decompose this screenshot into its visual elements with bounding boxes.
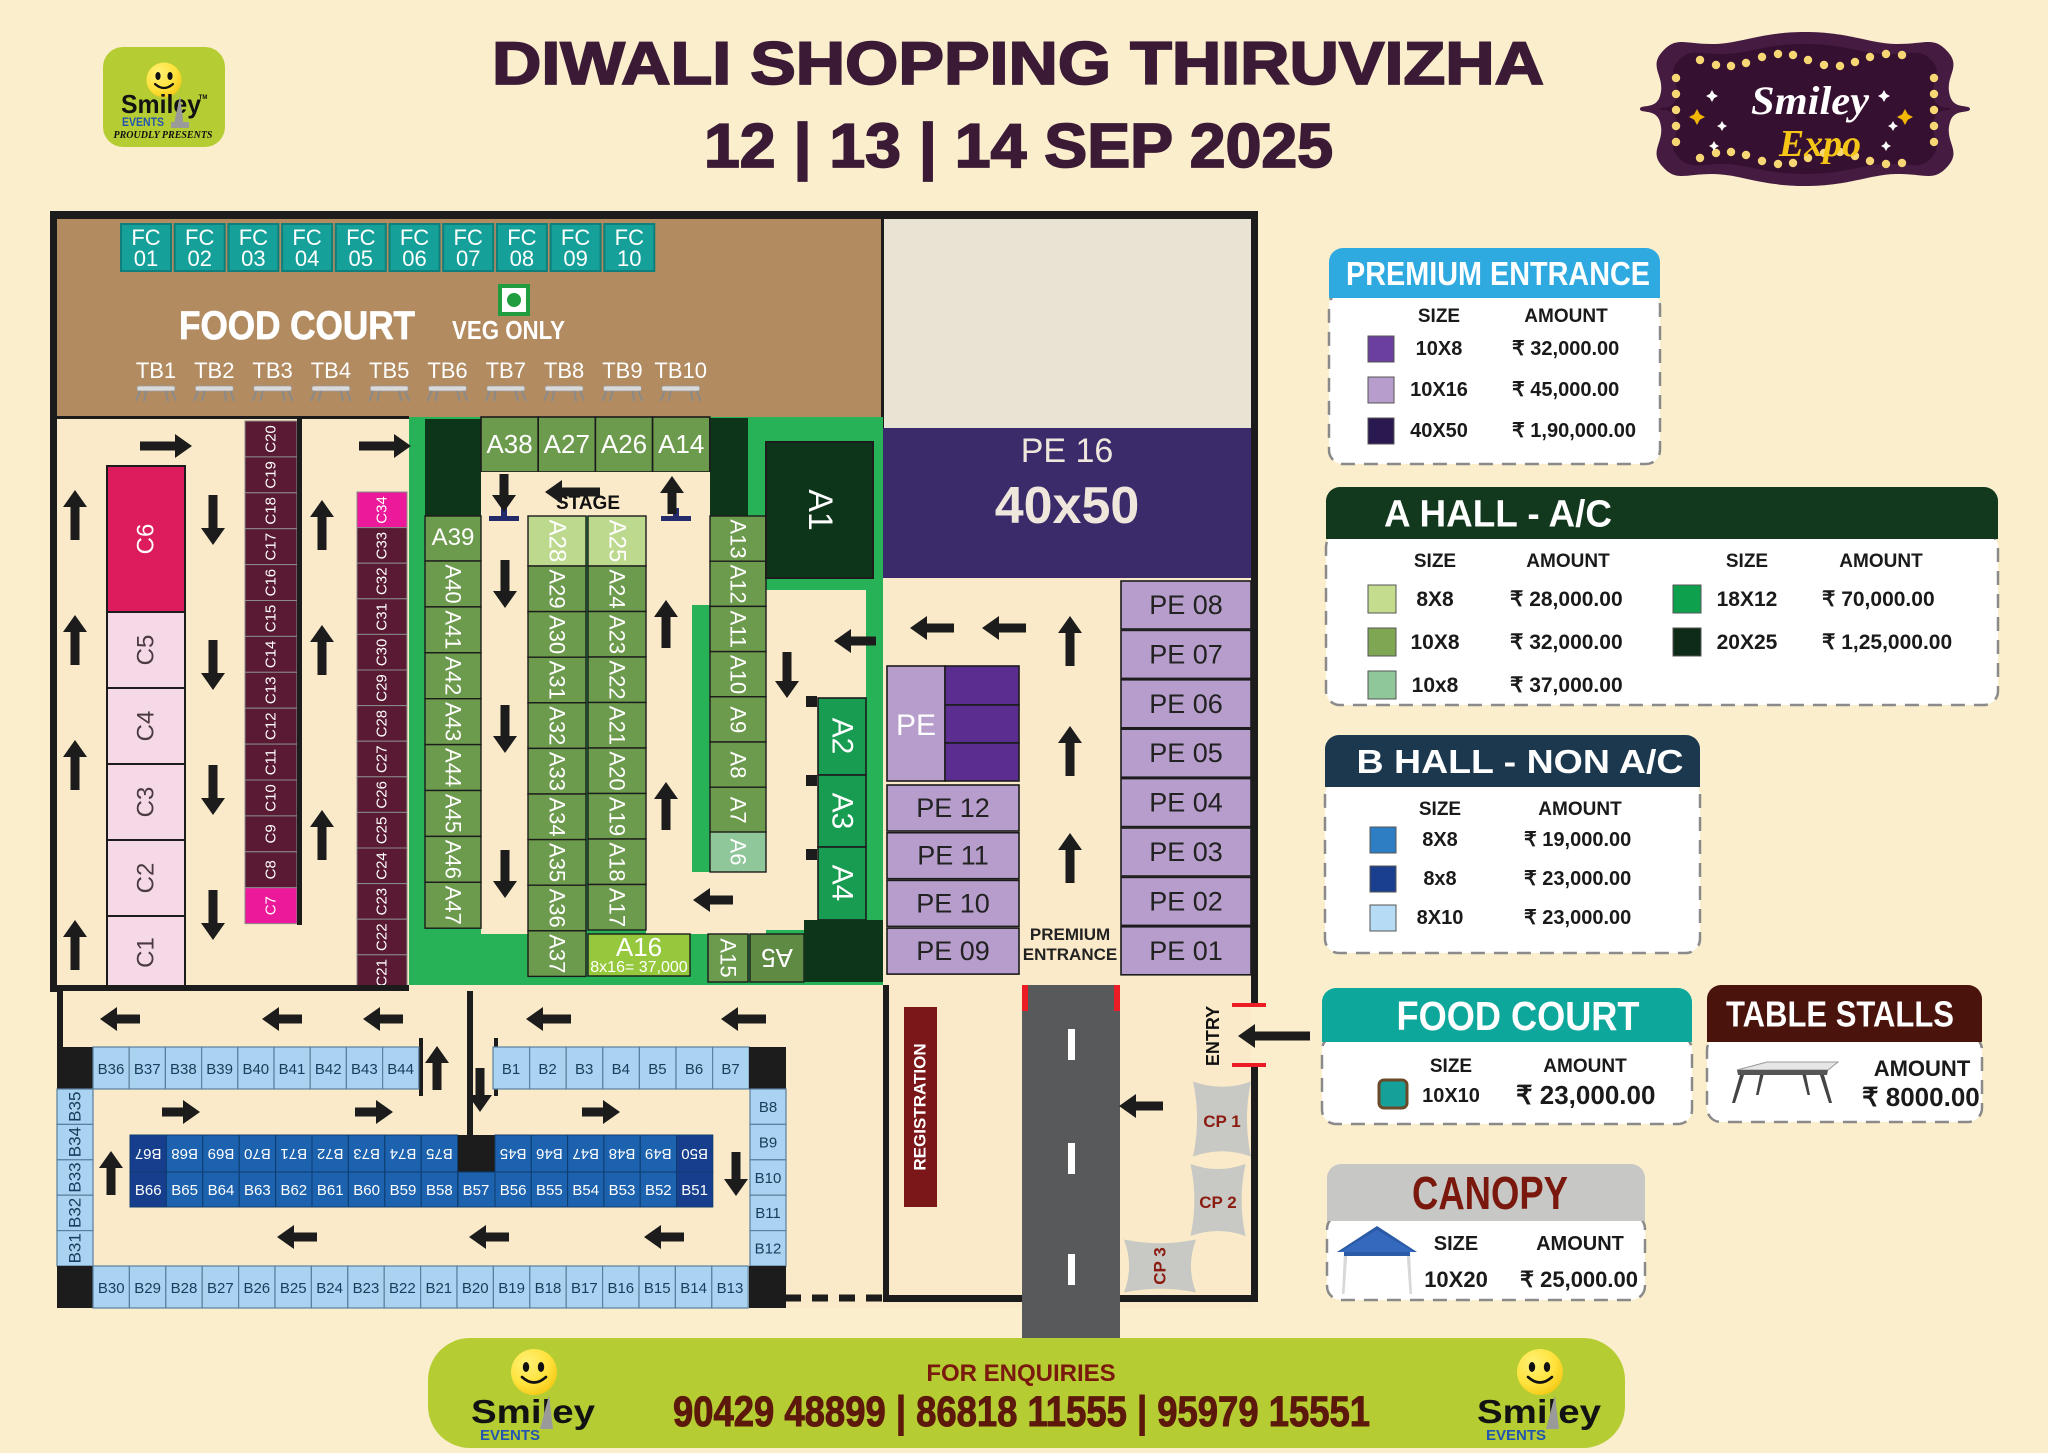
svg-text:Smiley: Smiley bbox=[1751, 78, 1869, 123]
svg-text:A36: A36 bbox=[545, 889, 570, 928]
svg-text:B27: B27 bbox=[207, 1280, 234, 1297]
svg-text:B40: B40 bbox=[242, 1061, 269, 1078]
svg-text:PE 03: PE 03 bbox=[1149, 837, 1223, 867]
svg-text:A30: A30 bbox=[545, 615, 570, 654]
svg-text:10X16: 10X16 bbox=[1410, 379, 1468, 401]
svg-text:TB6: TB6 bbox=[427, 358, 467, 383]
svg-text:B49: B49 bbox=[645, 1145, 672, 1162]
svg-text:C27: C27 bbox=[374, 745, 391, 773]
svg-text:10x8: 10x8 bbox=[1412, 674, 1459, 697]
svg-text:B HALL - NON A/C: B HALL - NON A/C bbox=[1357, 743, 1684, 780]
svg-text:A15: A15 bbox=[716, 938, 741, 977]
svg-text:C16: C16 bbox=[263, 569, 280, 597]
svg-text:C19: C19 bbox=[263, 461, 280, 489]
svg-text:TB5: TB5 bbox=[369, 358, 409, 383]
svg-text:A21: A21 bbox=[605, 706, 630, 745]
svg-text:07: 07 bbox=[456, 246, 480, 271]
svg-text:B51: B51 bbox=[681, 1182, 708, 1199]
svg-text:A47: A47 bbox=[441, 886, 466, 925]
svg-text:C10: C10 bbox=[263, 784, 280, 812]
svg-text:AMOUNT: AMOUNT bbox=[1839, 551, 1923, 572]
svg-text:C7: C7 bbox=[263, 896, 280, 915]
svg-text:SIZE: SIZE bbox=[1419, 799, 1461, 820]
svg-text:A20: A20 bbox=[605, 751, 630, 790]
svg-text:TB10: TB10 bbox=[654, 358, 707, 383]
svg-text:A13: A13 bbox=[726, 519, 751, 558]
svg-text:C14: C14 bbox=[263, 641, 280, 669]
svg-text:SIZE: SIZE bbox=[1430, 1056, 1472, 1077]
svg-text:A24: A24 bbox=[605, 569, 630, 608]
svg-text:A38: A38 bbox=[486, 429, 532, 459]
svg-text:B66: B66 bbox=[135, 1182, 162, 1199]
svg-text:C6: C6 bbox=[133, 524, 160, 555]
svg-text:A35: A35 bbox=[545, 843, 570, 882]
svg-text:FOOD COURT: FOOD COURT bbox=[179, 304, 415, 348]
svg-text:B65: B65 bbox=[171, 1182, 198, 1199]
svg-text:₹ 70,000.00: ₹ 70,000.00 bbox=[1822, 588, 1935, 611]
svg-text:CP 3: CP 3 bbox=[1151, 1247, 1170, 1285]
svg-text:02: 02 bbox=[187, 246, 211, 271]
svg-text:8x16= 37,000: 8x16= 37,000 bbox=[590, 959, 688, 976]
svg-text:₹ 32,000.00: ₹ 32,000.00 bbox=[1510, 631, 1623, 654]
svg-text:C17: C17 bbox=[263, 533, 280, 561]
svg-text:04: 04 bbox=[295, 246, 319, 271]
svg-text:TB1: TB1 bbox=[136, 358, 176, 383]
svg-text:B63: B63 bbox=[244, 1182, 271, 1199]
svg-text:B3: B3 bbox=[575, 1061, 593, 1078]
svg-text:A39: A39 bbox=[432, 524, 475, 551]
svg-text:VEG ONLY: VEG ONLY bbox=[452, 315, 565, 345]
svg-text:B57: B57 bbox=[463, 1182, 490, 1199]
svg-text:C18: C18 bbox=[263, 497, 280, 525]
svg-text:A1: A1 bbox=[801, 489, 839, 531]
svg-text:A40: A40 bbox=[441, 564, 466, 603]
svg-text:B38: B38 bbox=[170, 1061, 197, 1078]
svg-text:PE 09: PE 09 bbox=[916, 936, 990, 966]
svg-text:A26: A26 bbox=[601, 429, 647, 459]
svg-text:PREMIUM ENTRANCE: PREMIUM ENTRANCE bbox=[1346, 255, 1650, 292]
svg-text:B34: B34 bbox=[66, 1127, 85, 1157]
svg-text:B64: B64 bbox=[208, 1182, 235, 1199]
svg-text:B72: B72 bbox=[317, 1145, 344, 1162]
svg-text:B32: B32 bbox=[66, 1198, 85, 1228]
svg-text:PE 04: PE 04 bbox=[1149, 788, 1223, 818]
svg-text:B8: B8 bbox=[759, 1099, 777, 1116]
svg-text:B48: B48 bbox=[609, 1145, 636, 1162]
svg-text:A29: A29 bbox=[545, 569, 570, 608]
svg-text:B24: B24 bbox=[316, 1280, 343, 1297]
svg-text:B56: B56 bbox=[500, 1182, 527, 1199]
svg-text:B5: B5 bbox=[648, 1061, 666, 1078]
svg-text:A14: A14 bbox=[658, 429, 704, 459]
svg-text:B13: B13 bbox=[717, 1280, 744, 1297]
svg-text:A12: A12 bbox=[726, 565, 751, 604]
svg-text:A11: A11 bbox=[726, 611, 751, 649]
svg-text:C12: C12 bbox=[263, 712, 280, 740]
svg-text:B50: B50 bbox=[681, 1145, 708, 1162]
svg-text:B25: B25 bbox=[280, 1280, 307, 1297]
svg-text:B60: B60 bbox=[353, 1182, 380, 1199]
svg-text:TB8: TB8 bbox=[544, 358, 584, 383]
svg-text:EVENTS: EVENTS bbox=[480, 1427, 540, 1444]
svg-text:₹ 1,90,000.00: ₹ 1,90,000.00 bbox=[1512, 420, 1636, 442]
svg-text:05: 05 bbox=[349, 246, 373, 271]
svg-text:C25: C25 bbox=[374, 817, 391, 845]
svg-text:B6: B6 bbox=[685, 1061, 703, 1078]
svg-text:A10: A10 bbox=[726, 655, 751, 694]
svg-text:PREMIUM: PREMIUM bbox=[1030, 925, 1110, 944]
svg-text:₹ 23,000.00: ₹ 23,000.00 bbox=[1524, 868, 1631, 890]
svg-text:₹ 45,000.00: ₹ 45,000.00 bbox=[1512, 379, 1619, 401]
svg-text:B1: B1 bbox=[502, 1061, 520, 1078]
svg-text:₹ 19,000.00: ₹ 19,000.00 bbox=[1524, 829, 1631, 851]
svg-text:A22: A22 bbox=[605, 660, 630, 699]
svg-text:10X20: 10X20 bbox=[1424, 1267, 1488, 1292]
svg-text:90429 48899 | 86818 11555 | 95: 90429 48899 | 86818 11555 | 95979 15551 bbox=[673, 1388, 1370, 1436]
svg-text:PE 07: PE 07 bbox=[1149, 639, 1223, 669]
svg-text:C11: C11 bbox=[263, 749, 280, 775]
svg-text:PE 08: PE 08 bbox=[1149, 590, 1223, 620]
svg-text:B71: B71 bbox=[280, 1145, 307, 1162]
svg-text:B16: B16 bbox=[607, 1280, 634, 1297]
svg-text:A33: A33 bbox=[545, 752, 570, 791]
svg-text:B44: B44 bbox=[387, 1061, 414, 1078]
svg-text:PE 02: PE 02 bbox=[1149, 886, 1223, 916]
svg-text:B2: B2 bbox=[538, 1061, 556, 1078]
svg-text:A25: A25 bbox=[604, 520, 631, 563]
svg-text:FOR ENQUIRIES: FOR ENQUIRIES bbox=[926, 1360, 1115, 1387]
svg-text:C31: C31 bbox=[374, 603, 391, 631]
svg-text:C33: C33 bbox=[374, 532, 391, 560]
svg-text:B31: B31 bbox=[66, 1233, 85, 1263]
svg-text:B73: B73 bbox=[353, 1145, 380, 1162]
svg-text:Smiley: Smiley bbox=[471, 1393, 596, 1430]
svg-text:B14: B14 bbox=[680, 1280, 707, 1297]
svg-text:₹ 32,000.00: ₹ 32,000.00 bbox=[1512, 338, 1619, 360]
svg-text:10X10: 10X10 bbox=[1422, 1085, 1480, 1107]
svg-text:C9: C9 bbox=[263, 824, 280, 843]
svg-text:B54: B54 bbox=[572, 1182, 599, 1199]
svg-text:B55: B55 bbox=[536, 1182, 563, 1199]
svg-text:01: 01 bbox=[134, 246, 158, 271]
svg-text:SIZE: SIZE bbox=[1726, 551, 1768, 572]
svg-text:C1: C1 bbox=[133, 937, 160, 968]
svg-text:TB7: TB7 bbox=[486, 358, 526, 383]
svg-text:8X8: 8X8 bbox=[1416, 588, 1454, 611]
svg-text:C13: C13 bbox=[263, 677, 280, 705]
svg-text:A9: A9 bbox=[726, 706, 751, 733]
svg-text:A28: A28 bbox=[544, 520, 571, 563]
svg-text:8x8: 8x8 bbox=[1423, 868, 1456, 890]
svg-text:B69: B69 bbox=[208, 1145, 235, 1162]
svg-text:C29: C29 bbox=[374, 674, 391, 702]
svg-text:₹ 8000.00: ₹ 8000.00 bbox=[1862, 1082, 1980, 1112]
svg-text:TB9: TB9 bbox=[602, 358, 642, 383]
svg-text:B7: B7 bbox=[721, 1061, 739, 1078]
svg-text:A23: A23 bbox=[605, 615, 630, 654]
svg-text:C20: C20 bbox=[263, 425, 280, 453]
svg-text:B58: B58 bbox=[426, 1182, 453, 1199]
svg-text:C24: C24 bbox=[374, 852, 391, 880]
svg-text:A5: A5 bbox=[761, 943, 793, 973]
svg-text:C2: C2 bbox=[133, 863, 160, 894]
svg-text:B29: B29 bbox=[134, 1280, 161, 1297]
svg-text:12 | 13 | 14 SEP 2025: 12 | 13 | 14 SEP 2025 bbox=[704, 112, 1333, 182]
svg-text:A27: A27 bbox=[544, 429, 590, 459]
svg-text:C30: C30 bbox=[374, 639, 391, 667]
svg-text:A44: A44 bbox=[441, 748, 466, 787]
svg-text:B41: B41 bbox=[279, 1061, 306, 1078]
svg-text:C32: C32 bbox=[374, 567, 391, 595]
svg-text:C21: C21 bbox=[374, 959, 391, 987]
svg-text:B46: B46 bbox=[536, 1145, 563, 1162]
svg-text:B59: B59 bbox=[390, 1182, 417, 1199]
svg-text:B47: B47 bbox=[572, 1145, 599, 1162]
svg-text:PE 12: PE 12 bbox=[916, 793, 990, 823]
svg-text:PE 06: PE 06 bbox=[1149, 689, 1223, 719]
svg-text:C4: C4 bbox=[133, 711, 160, 742]
svg-text:B33: B33 bbox=[66, 1162, 85, 1192]
svg-text:A16: A16 bbox=[616, 932, 662, 962]
svg-text:Expo: Expo bbox=[1778, 123, 1861, 165]
svg-text:A43: A43 bbox=[441, 702, 466, 741]
svg-text:SIZE: SIZE bbox=[1418, 306, 1460, 327]
svg-text:FOOD COURT: FOOD COURT bbox=[1397, 993, 1640, 1039]
svg-text:B35: B35 bbox=[66, 1092, 85, 1122]
svg-text:A31: A31 bbox=[545, 661, 570, 700]
svg-text:₹ 23,000.00: ₹ 23,000.00 bbox=[1516, 1080, 1655, 1110]
svg-text:Smiley: Smiley bbox=[1477, 1393, 1602, 1430]
svg-text:A6: A6 bbox=[726, 839, 751, 866]
svg-text:CP 1: CP 1 bbox=[1203, 1112, 1241, 1131]
svg-text:AMOUNT: AMOUNT bbox=[1536, 1233, 1624, 1255]
svg-text:B75: B75 bbox=[426, 1145, 453, 1162]
svg-text:AMOUNT: AMOUNT bbox=[1526, 551, 1610, 572]
svg-text:A45: A45 bbox=[441, 794, 466, 833]
svg-text:B30: B30 bbox=[98, 1280, 125, 1297]
svg-text:20X25: 20X25 bbox=[1717, 631, 1778, 654]
svg-text:DIWALI SHOPPING THIRUVIZHA: DIWALI SHOPPING THIRUVIZHA bbox=[492, 30, 1544, 97]
svg-text:B42: B42 bbox=[315, 1061, 342, 1078]
svg-text:08: 08 bbox=[510, 246, 534, 271]
svg-text:B43: B43 bbox=[351, 1061, 378, 1078]
svg-text:PE 16: PE 16 bbox=[1021, 432, 1114, 470]
svg-text:A32: A32 bbox=[545, 706, 570, 745]
svg-text:SIZE: SIZE bbox=[1414, 551, 1456, 572]
svg-text:8X10: 8X10 bbox=[1417, 907, 1464, 929]
svg-text:B36: B36 bbox=[98, 1061, 125, 1078]
svg-text:A HALL - A/C: A HALL - A/C bbox=[1384, 494, 1612, 536]
svg-text:CANOPY: CANOPY bbox=[1412, 1167, 1568, 1219]
svg-text:B61: B61 bbox=[317, 1182, 344, 1199]
svg-text:C22: C22 bbox=[374, 923, 391, 951]
svg-text:AMOUNT: AMOUNT bbox=[1524, 306, 1608, 327]
svg-text:B20: B20 bbox=[462, 1280, 489, 1297]
svg-text:TB3: TB3 bbox=[252, 358, 292, 383]
svg-text:PE 01: PE 01 bbox=[1149, 936, 1223, 966]
svg-text:ENTRY: ENTRY bbox=[1203, 1006, 1223, 1066]
svg-text:09: 09 bbox=[563, 246, 587, 271]
svg-text:10X8: 10X8 bbox=[1416, 338, 1463, 360]
svg-text:TB2: TB2 bbox=[194, 358, 234, 383]
svg-text:40X50: 40X50 bbox=[1410, 420, 1468, 442]
svg-text:₹ 28,000.00: ₹ 28,000.00 bbox=[1510, 588, 1623, 611]
svg-text:40x50: 40x50 bbox=[995, 477, 1140, 535]
svg-text:B53: B53 bbox=[609, 1182, 636, 1199]
svg-text:B10: B10 bbox=[755, 1170, 782, 1187]
svg-text:03: 03 bbox=[241, 246, 265, 271]
svg-text:TB4: TB4 bbox=[311, 358, 351, 383]
svg-text:B28: B28 bbox=[171, 1280, 198, 1297]
svg-text:B21: B21 bbox=[425, 1280, 452, 1297]
svg-text:C8: C8 bbox=[263, 860, 280, 879]
svg-text:C5: C5 bbox=[133, 635, 160, 666]
svg-text:B12: B12 bbox=[755, 1241, 782, 1258]
svg-text:B26: B26 bbox=[243, 1280, 270, 1297]
svg-text:A46: A46 bbox=[441, 840, 466, 879]
svg-text:B45: B45 bbox=[500, 1145, 527, 1162]
svg-text:B67: B67 bbox=[135, 1145, 162, 1162]
svg-text:A3: A3 bbox=[826, 793, 859, 830]
svg-text:B17: B17 bbox=[571, 1280, 598, 1297]
svg-text:B68: B68 bbox=[171, 1145, 198, 1162]
svg-text:B39: B39 bbox=[206, 1061, 233, 1078]
svg-text:B52: B52 bbox=[645, 1182, 672, 1199]
svg-text:B19: B19 bbox=[498, 1280, 525, 1297]
svg-text:PROUDLY PRESENTS: PROUDLY PRESENTS bbox=[114, 130, 213, 141]
svg-text:A34: A34 bbox=[545, 797, 570, 836]
svg-text:10: 10 bbox=[617, 246, 641, 271]
svg-text:A8: A8 bbox=[726, 752, 751, 779]
svg-text:C3: C3 bbox=[133, 787, 160, 818]
svg-text:B4: B4 bbox=[612, 1061, 630, 1078]
svg-text:B18: B18 bbox=[535, 1280, 562, 1297]
svg-text:AMOUNT: AMOUNT bbox=[1543, 1056, 1627, 1077]
svg-text:A18: A18 bbox=[605, 842, 630, 881]
svg-text:C34: C34 bbox=[374, 496, 391, 524]
svg-text:₹ 25,000.00: ₹ 25,000.00 bbox=[1520, 1267, 1638, 1292]
svg-text:A37: A37 bbox=[545, 934, 570, 973]
svg-text:A7: A7 bbox=[726, 797, 751, 824]
svg-text:A4: A4 bbox=[826, 865, 859, 902]
svg-text:C15: C15 bbox=[263, 605, 280, 633]
svg-text:A41: A41 bbox=[441, 610, 466, 649]
svg-text:AMOUNT: AMOUNT bbox=[1538, 799, 1622, 820]
svg-text:A17: A17 bbox=[605, 888, 630, 927]
svg-text:TM: TM bbox=[199, 95, 208, 101]
svg-text:06: 06 bbox=[402, 246, 426, 271]
svg-text:CP 2: CP 2 bbox=[1199, 1193, 1237, 1212]
svg-text:B15: B15 bbox=[644, 1280, 671, 1297]
svg-text:8X8: 8X8 bbox=[1422, 829, 1458, 851]
svg-text:EVENTS: EVENTS bbox=[1486, 1427, 1546, 1444]
svg-text:₹ 1,25,000.00: ₹ 1,25,000.00 bbox=[1822, 631, 1952, 654]
svg-text:₹ 23,000.00: ₹ 23,000.00 bbox=[1524, 907, 1631, 929]
svg-text:B70: B70 bbox=[244, 1145, 271, 1162]
svg-text:A2: A2 bbox=[826, 718, 859, 755]
svg-text:ENTRANCE: ENTRANCE bbox=[1023, 945, 1117, 964]
svg-text:B9: B9 bbox=[759, 1134, 777, 1151]
svg-text:AMOUNT: AMOUNT bbox=[1874, 1056, 1971, 1081]
svg-text:REGISTRATION: REGISTRATION bbox=[911, 1043, 930, 1170]
svg-text:B22: B22 bbox=[389, 1280, 416, 1297]
svg-text:B62: B62 bbox=[280, 1182, 307, 1199]
svg-text:C28: C28 bbox=[374, 710, 391, 738]
svg-text:TABLE STALLS: TABLE STALLS bbox=[1726, 993, 1954, 1034]
svg-text:B37: B37 bbox=[134, 1061, 161, 1078]
svg-text:B11: B11 bbox=[755, 1205, 781, 1222]
svg-text:PE 05: PE 05 bbox=[1149, 738, 1223, 768]
svg-text:EVENTS: EVENTS bbox=[122, 115, 164, 129]
svg-text:C26: C26 bbox=[374, 781, 391, 809]
svg-text:A19: A19 bbox=[605, 797, 630, 836]
svg-text:A42: A42 bbox=[441, 656, 466, 695]
svg-text:B74: B74 bbox=[390, 1145, 417, 1162]
svg-text:PE 10: PE 10 bbox=[916, 888, 990, 918]
svg-text:18X12: 18X12 bbox=[1717, 588, 1778, 611]
svg-text:₹ 37,000.00: ₹ 37,000.00 bbox=[1510, 674, 1623, 697]
svg-text:B23: B23 bbox=[353, 1280, 380, 1297]
svg-text:PE: PE bbox=[896, 709, 936, 742]
svg-text:SIZE: SIZE bbox=[1434, 1233, 1478, 1255]
svg-text:PE 11: PE 11 bbox=[917, 841, 989, 871]
svg-text:C23: C23 bbox=[374, 888, 391, 916]
svg-text:10X8: 10X8 bbox=[1410, 631, 1459, 654]
